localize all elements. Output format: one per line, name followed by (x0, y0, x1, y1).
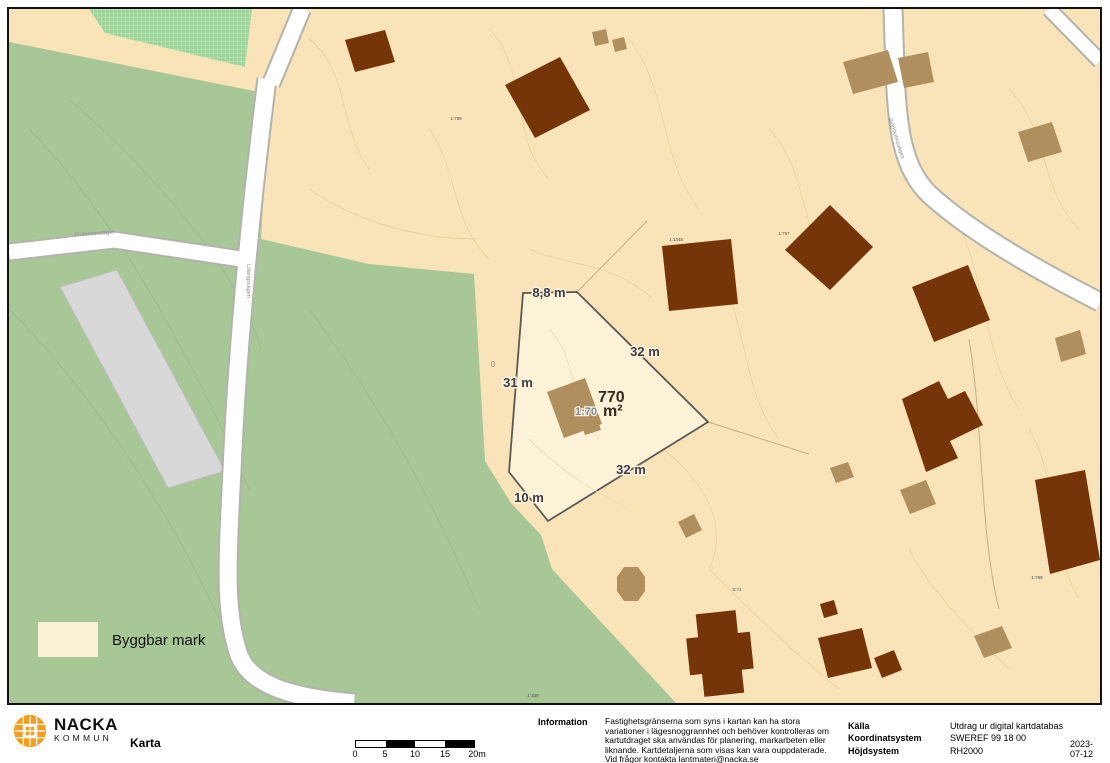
map-frame: 8,8 m 32 m 31 m 32 m 10 m 770 1:70 m² 0 … (7, 7, 1102, 705)
logo-name: NACKA (54, 716, 118, 733)
scale-bar-labels: 0 5 10 15 20m (355, 749, 475, 760)
scale-tick: 5 (382, 749, 387, 759)
building (662, 239, 738, 311)
source-value: Utdrag ur digital kartdatabas (950, 720, 1063, 732)
scale-bar: 0 5 10 15 20m (355, 740, 475, 760)
logo-subtitle: KOMMUN (54, 733, 118, 743)
cadastral-label: 1:338 (527, 693, 539, 698)
information-label: Information (538, 717, 588, 727)
height-system-value: RH2000 (950, 745, 1063, 757)
street-name-vertical: Lillängsvägen (245, 264, 251, 298)
nacka-kommun-logo: NACKA KOMMUN (12, 713, 118, 749)
parcel-designation: 1:70 (575, 406, 597, 418)
measurement-bottom: 32 m (616, 462, 646, 477)
contour-elevation-label: 0 (491, 360, 496, 369)
cadastral-label: 1:798 (450, 116, 462, 121)
meta-labels: Källa Koordinatsystem Höjdsystem (848, 720, 922, 757)
measurement-right: 32 m (630, 344, 660, 359)
measurement-bottom-left: 10 m (514, 490, 544, 505)
map-date: 2023- 07-12 (1070, 739, 1093, 759)
coordinate-system-value: SWEREF 99 18 00 (950, 732, 1063, 744)
page: 8,8 m 32 m 31 m 32 m 10 m 770 1:70 m² 0 … (0, 0, 1110, 763)
scale-bar-segments (355, 740, 475, 748)
parcel-area-unit: m² (603, 403, 623, 420)
measurement-top: 8,8 m (532, 285, 565, 300)
map-image: 8,8 m 32 m 31 m 32 m 10 m 770 1:70 m² 0 … (9, 9, 1100, 703)
measurement-left: 31 m (503, 375, 533, 390)
scale-tick: 10 (410, 749, 420, 759)
scale-tick: 0 (352, 749, 357, 759)
cadastral-label: S:71 (732, 587, 742, 592)
map-title: Karta (130, 736, 161, 750)
cadastral-label: 1:769 (1031, 575, 1043, 580)
source-label: Källa (848, 720, 922, 732)
cadastral-label: 1:767 (778, 231, 790, 236)
building (617, 567, 645, 601)
date-line: 2023- (1070, 739, 1093, 749)
footer: NACKA KOMMUN Karta 0 5 10 15 20m Informa… (0, 709, 1110, 763)
scale-tick: 15 (440, 749, 450, 759)
cadastral-label: 1:1348 (669, 237, 683, 242)
info-line: Vid frågor kontakta lantmateri@nacka.se (605, 755, 850, 763)
height-system-label: Höjdsystem (848, 745, 922, 757)
building (898, 52, 934, 88)
building (592, 29, 609, 46)
date-line: 07-12 (1070, 749, 1093, 759)
legend-swatch (38, 622, 98, 657)
legend-label: Byggbar mark (112, 632, 206, 649)
coordinate-system-label: Koordinatsystem (848, 732, 922, 744)
meta-values: Utdrag ur digital kartdatabas SWEREF 99 … (950, 720, 1063, 757)
information-text: Fastighetsgränserna som syns i kartan ka… (605, 717, 850, 763)
globe-icon (12, 713, 48, 749)
scale-tick: 20m (468, 749, 486, 759)
